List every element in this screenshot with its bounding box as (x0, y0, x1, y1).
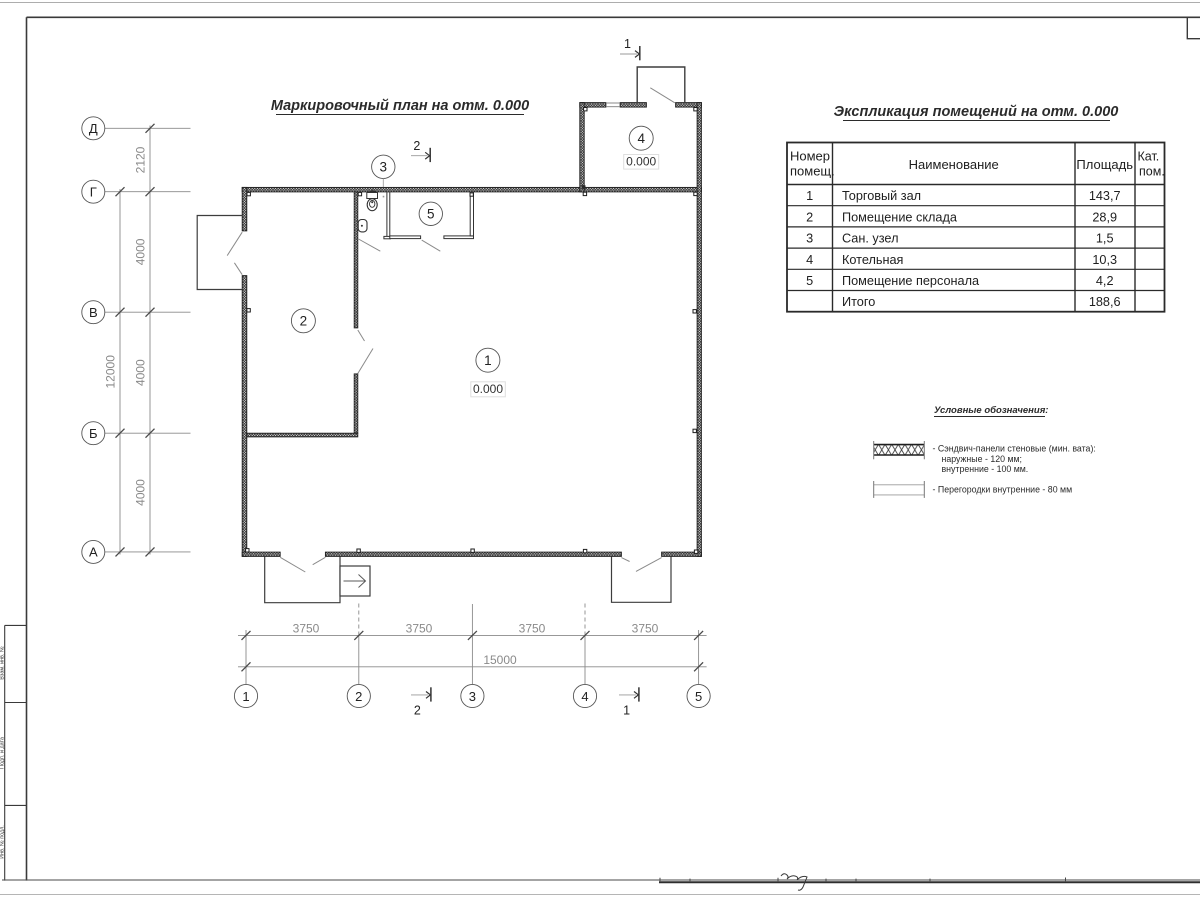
svg-text:3750: 3750 (519, 621, 546, 635)
svg-text:2: 2 (414, 704, 421, 718)
svg-text:2: 2 (355, 689, 362, 704)
svg-text:Взам. инв. №: Взам. инв. № (0, 646, 5, 680)
svg-text:- Перегородки внутренние - 80: - Перегородки внутренние - 80 мм (933, 484, 1073, 494)
svg-text:1: 1 (624, 37, 631, 51)
svg-text:Подп. и дата: Подп. и дата (0, 737, 5, 769)
svg-text:Наименование: Наименование (909, 157, 999, 172)
svg-text:Г: Г (90, 184, 97, 199)
svg-text:Помещение склада: Помещение склада (842, 210, 958, 224)
svg-text:А: А (89, 545, 98, 560)
svg-text:2: 2 (413, 139, 420, 153)
svg-text:15000: 15000 (483, 653, 517, 667)
svg-text:3750: 3750 (632, 621, 659, 635)
svg-text:Д: Д (89, 121, 98, 136)
svg-text:188,6: 188,6 (1089, 295, 1121, 309)
svg-text:Условные обозначения:: Условные обозначения: (934, 405, 1048, 416)
svg-text:3: 3 (380, 160, 388, 175)
svg-text:0.000: 0.000 (626, 155, 656, 169)
svg-text:28,9: 28,9 (1092, 210, 1117, 224)
svg-text:3750: 3750 (406, 621, 433, 635)
svg-text:4: 4 (637, 131, 645, 146)
svg-text:0.000: 0.000 (473, 382, 503, 396)
svg-text:143,7: 143,7 (1089, 189, 1121, 203)
svg-text:внутренние - 100 мм.: внутренние - 100 мм. (942, 464, 1029, 474)
svg-text:4000: 4000 (134, 359, 148, 386)
svg-text:4: 4 (581, 689, 588, 704)
svg-text:Сан. узел: Сан. узел (842, 232, 898, 246)
svg-text:В: В (89, 305, 98, 320)
svg-text:12000: 12000 (104, 355, 118, 389)
svg-text:1: 1 (623, 704, 630, 718)
svg-text:3: 3 (469, 689, 476, 704)
svg-text:1: 1 (806, 189, 813, 203)
svg-text:3750: 3750 (293, 621, 320, 635)
svg-text:4000: 4000 (134, 479, 148, 506)
svg-text:5: 5 (806, 274, 813, 288)
svg-text:1,5: 1,5 (1096, 232, 1114, 246)
svg-text:Итого: Итого (842, 295, 875, 309)
svg-text:5: 5 (427, 207, 435, 222)
svg-text:пом.: пом. (1139, 164, 1165, 178)
svg-text:4000: 4000 (134, 238, 148, 265)
svg-text:Помещение персонала: Помещение персонала (842, 274, 980, 288)
svg-text:Инв. № подл.: Инв. № подл. (0, 825, 5, 859)
svg-text:Кат.: Кат. (1138, 150, 1160, 164)
svg-text:2: 2 (300, 314, 308, 329)
svg-text:10,3: 10,3 (1092, 253, 1117, 267)
svg-text:2120: 2120 (134, 146, 148, 173)
svg-text:Номер: Номер (790, 149, 830, 164)
svg-text:3: 3 (806, 232, 813, 246)
svg-text:Котельная: Котельная (842, 253, 903, 267)
svg-text:Торговый зал: Торговый зал (842, 189, 921, 203)
svg-text:2: 2 (806, 210, 813, 224)
svg-text:Площадь: Площадь (1076, 157, 1133, 172)
svg-text:помещ.: помещ. (790, 163, 835, 178)
svg-text:Маркировочный план на отм. 0.0: Маркировочный план на отм. 0.000 (271, 98, 529, 114)
svg-text:Б: Б (89, 426, 98, 441)
svg-text:1: 1 (484, 353, 492, 368)
svg-text:- Сэндвич-панели стеновые (мин: - Сэндвич-панели стеновые (мин. вата): (933, 444, 1096, 454)
svg-text:наружные - 120 мм;: наружные - 120 мм; (942, 454, 1022, 464)
svg-text:5: 5 (695, 689, 702, 704)
svg-text:4: 4 (806, 253, 813, 267)
svg-text:Экспликация помещений на отм.: Экспликация помещений на отм. 0.000 (834, 104, 1119, 120)
svg-text:1: 1 (242, 689, 249, 704)
svg-text:4,2: 4,2 (1096, 274, 1114, 288)
